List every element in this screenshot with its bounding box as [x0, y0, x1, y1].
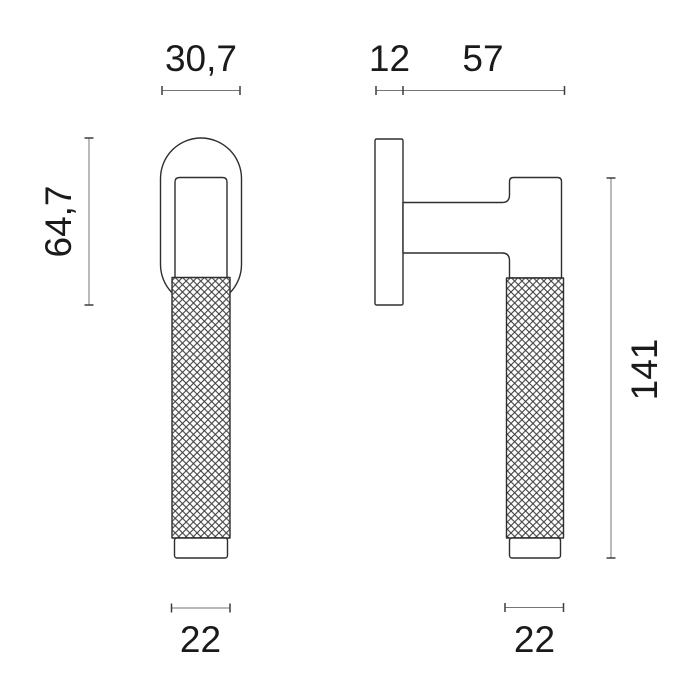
- side-knurled-grip: [507, 278, 564, 538]
- handle-dimension-drawing: 30,7 12 57 64,7 141 22 22: [0, 0, 700, 700]
- front-view: [161, 138, 242, 558]
- dim-front-grip-width-label: 22: [180, 619, 221, 660]
- technical-drawing-canvas: 30,7 12 57 64,7 141 22 22: [0, 0, 700, 700]
- side-rosette-plate: [375, 139, 403, 305]
- drawing-background: [0, 0, 700, 700]
- dim-side-grip-width-label: 22: [514, 619, 555, 660]
- dim-side-rosette-depth-label: 12: [369, 38, 410, 79]
- side-grip-end-cap: [510, 538, 561, 558]
- dim-front-head-width-label: 30,7: [165, 38, 237, 79]
- dim-side-projection-label: 57: [462, 38, 503, 79]
- front-grip-end-cap: [175, 538, 228, 558]
- dim-side-total-height-label: 141: [624, 339, 665, 401]
- dim-front-head-height-label: 64,7: [38, 185, 79, 257]
- front-knurled-grip: [172, 278, 230, 539]
